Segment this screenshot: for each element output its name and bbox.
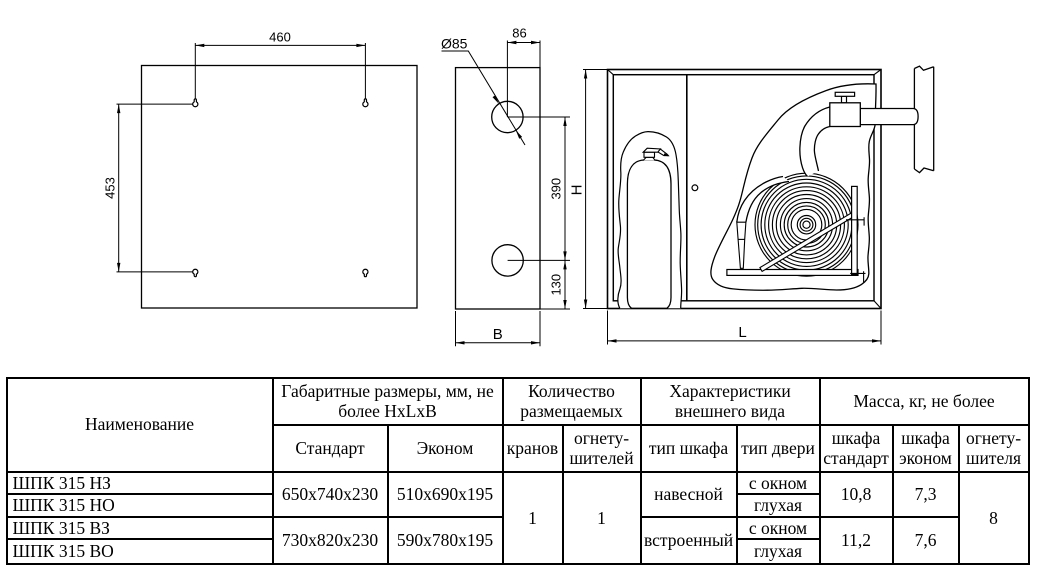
svg-text:L: L — [738, 324, 746, 341]
svg-text:130: 130 — [549, 274, 564, 296]
svg-text:460: 460 — [269, 30, 291, 45]
svg-text:H: H — [569, 185, 586, 196]
svg-text:86: 86 — [512, 26, 526, 41]
svg-text:453: 453 — [103, 177, 118, 199]
svg-text:B: B — [493, 326, 503, 343]
svg-text:Ø85: Ø85 — [441, 36, 468, 52]
svg-text:390: 390 — [549, 178, 564, 200]
